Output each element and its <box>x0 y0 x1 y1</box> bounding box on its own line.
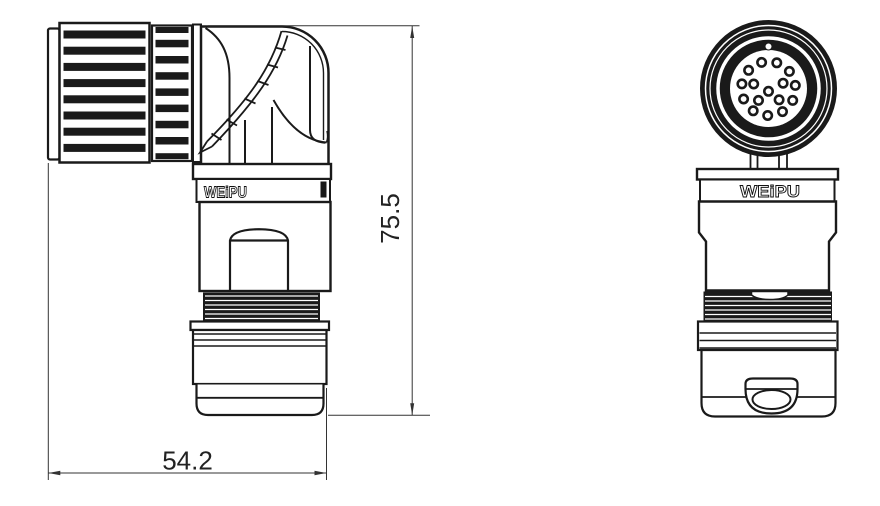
side-flange <box>193 164 331 179</box>
drawing-svg: WEiPU <box>0 0 880 506</box>
side-body-block <box>200 202 331 291</box>
coupling-nut-end-cap <box>48 29 60 160</box>
front-brand-logo: WEiPU <box>740 182 800 201</box>
connector-technical-drawing: WEiPU <box>0 0 880 506</box>
front-view: WEiPU <box>697 20 838 417</box>
elbow-housing <box>200 27 329 164</box>
front-body <box>699 202 836 291</box>
gland-latch <box>746 379 798 414</box>
band-mark <box>321 182 327 198</box>
arrow-up <box>410 26 414 38</box>
thread-latch-notch <box>752 292 789 300</box>
arrow-left <box>48 471 60 475</box>
arrow-right <box>315 471 327 475</box>
side-brand-logo: WEiPU <box>204 185 247 202</box>
front-cable-gland <box>698 322 838 417</box>
arrow-down <box>410 403 414 415</box>
coupling-nut-knurl-ring <box>152 26 192 162</box>
front-circular-face <box>700 20 837 157</box>
side-cable-gland <box>191 322 330 416</box>
width-dimension-label: 54.2 <box>162 446 213 476</box>
side-thread-section <box>203 293 320 322</box>
side-brand-band: WEiPU <box>197 179 331 202</box>
height-dimension-label: 75.5 <box>375 193 405 244</box>
front-brand-band: WEiPU <box>700 180 835 202</box>
coupling-nut-barrel <box>60 23 150 163</box>
keyway-notch <box>765 43 772 50</box>
side-view: WEiPU <box>48 23 331 415</box>
front-thread-section <box>704 292 833 322</box>
front-flange <box>697 169 838 180</box>
